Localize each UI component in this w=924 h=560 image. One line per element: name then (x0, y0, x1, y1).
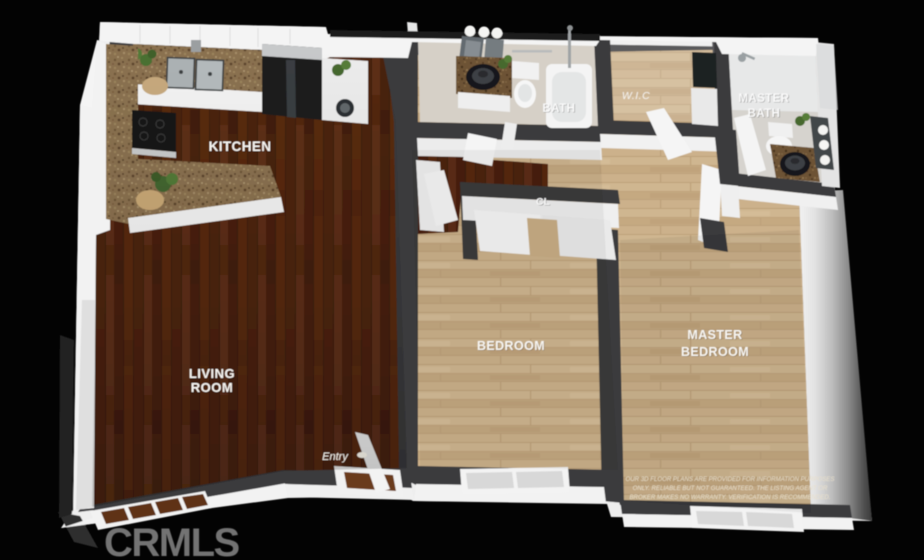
svg-text:OUR 3D FLOOR PLANS ARE PROVIDE: OUR 3D FLOOR PLANS ARE PROVIDED FOR INFO… (626, 476, 835, 483)
svg-text:KITCHEN: KITCHEN (209, 139, 272, 154)
svg-text:CRMLS: CRMLS (104, 521, 240, 560)
svg-text:ONLY. RELIABLE BUT NOT GUARANT: ONLY. RELIABLE BUT NOT GUARANTEED. THE L… (633, 485, 828, 492)
svg-text:BATH: BATH (748, 108, 781, 120)
svg-text:BROKER MAKES NO WARRANTY. VERI: BROKER MAKES NO WARRANTY. VERIFICATION I… (629, 494, 830, 501)
svg-text:W.I.C: W.I.C (622, 90, 650, 102)
svg-text:BATH: BATH (542, 103, 575, 115)
svg-text:LIVING: LIVING (189, 366, 235, 381)
svg-text:ROOM: ROOM (191, 380, 233, 395)
svg-text:MASTER: MASTER (687, 328, 742, 342)
svg-text:MASTER: MASTER (739, 93, 790, 105)
svg-text:BEDROOM: BEDROOM (477, 339, 545, 353)
svg-text:CL: CL (536, 196, 551, 208)
svg-text:Entry: Entry (322, 451, 349, 463)
svg-text:BEDROOM: BEDROOM (681, 345, 749, 359)
